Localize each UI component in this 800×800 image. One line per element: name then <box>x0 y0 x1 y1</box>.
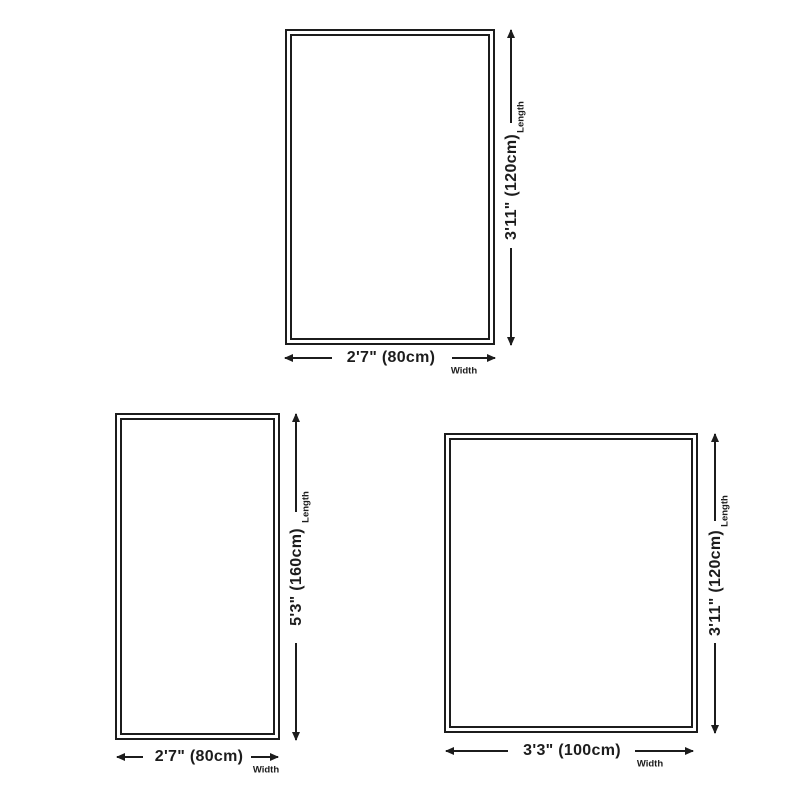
rug-diagram-120x100: Length 3'11" (120cm) 3'3" (100cm) Width <box>0 0 800 800</box>
arrow-up-icon <box>711 433 719 442</box>
length-axis-label: Length <box>720 495 730 527</box>
length-value: 3'11" (120cm) <box>708 530 724 636</box>
arrow-down-icon <box>711 725 719 734</box>
length-dimension-line-upper <box>714 434 716 521</box>
rug-outline <box>444 433 698 733</box>
width-value: 3'3" (100cm) <box>523 743 621 759</box>
width-dimension-line-right <box>635 750 693 752</box>
width-dimension-line-left <box>446 750 508 752</box>
length-dimension-line-lower <box>714 643 716 733</box>
width-axis-label: Width <box>637 759 663 769</box>
arrow-right-icon <box>685 747 694 755</box>
arrow-left-icon <box>445 747 454 755</box>
rug-inner-outline <box>449 438 693 728</box>
size-chart: Length 3'11" (120cm) 2'7" (80cm) Width L… <box>0 0 800 800</box>
